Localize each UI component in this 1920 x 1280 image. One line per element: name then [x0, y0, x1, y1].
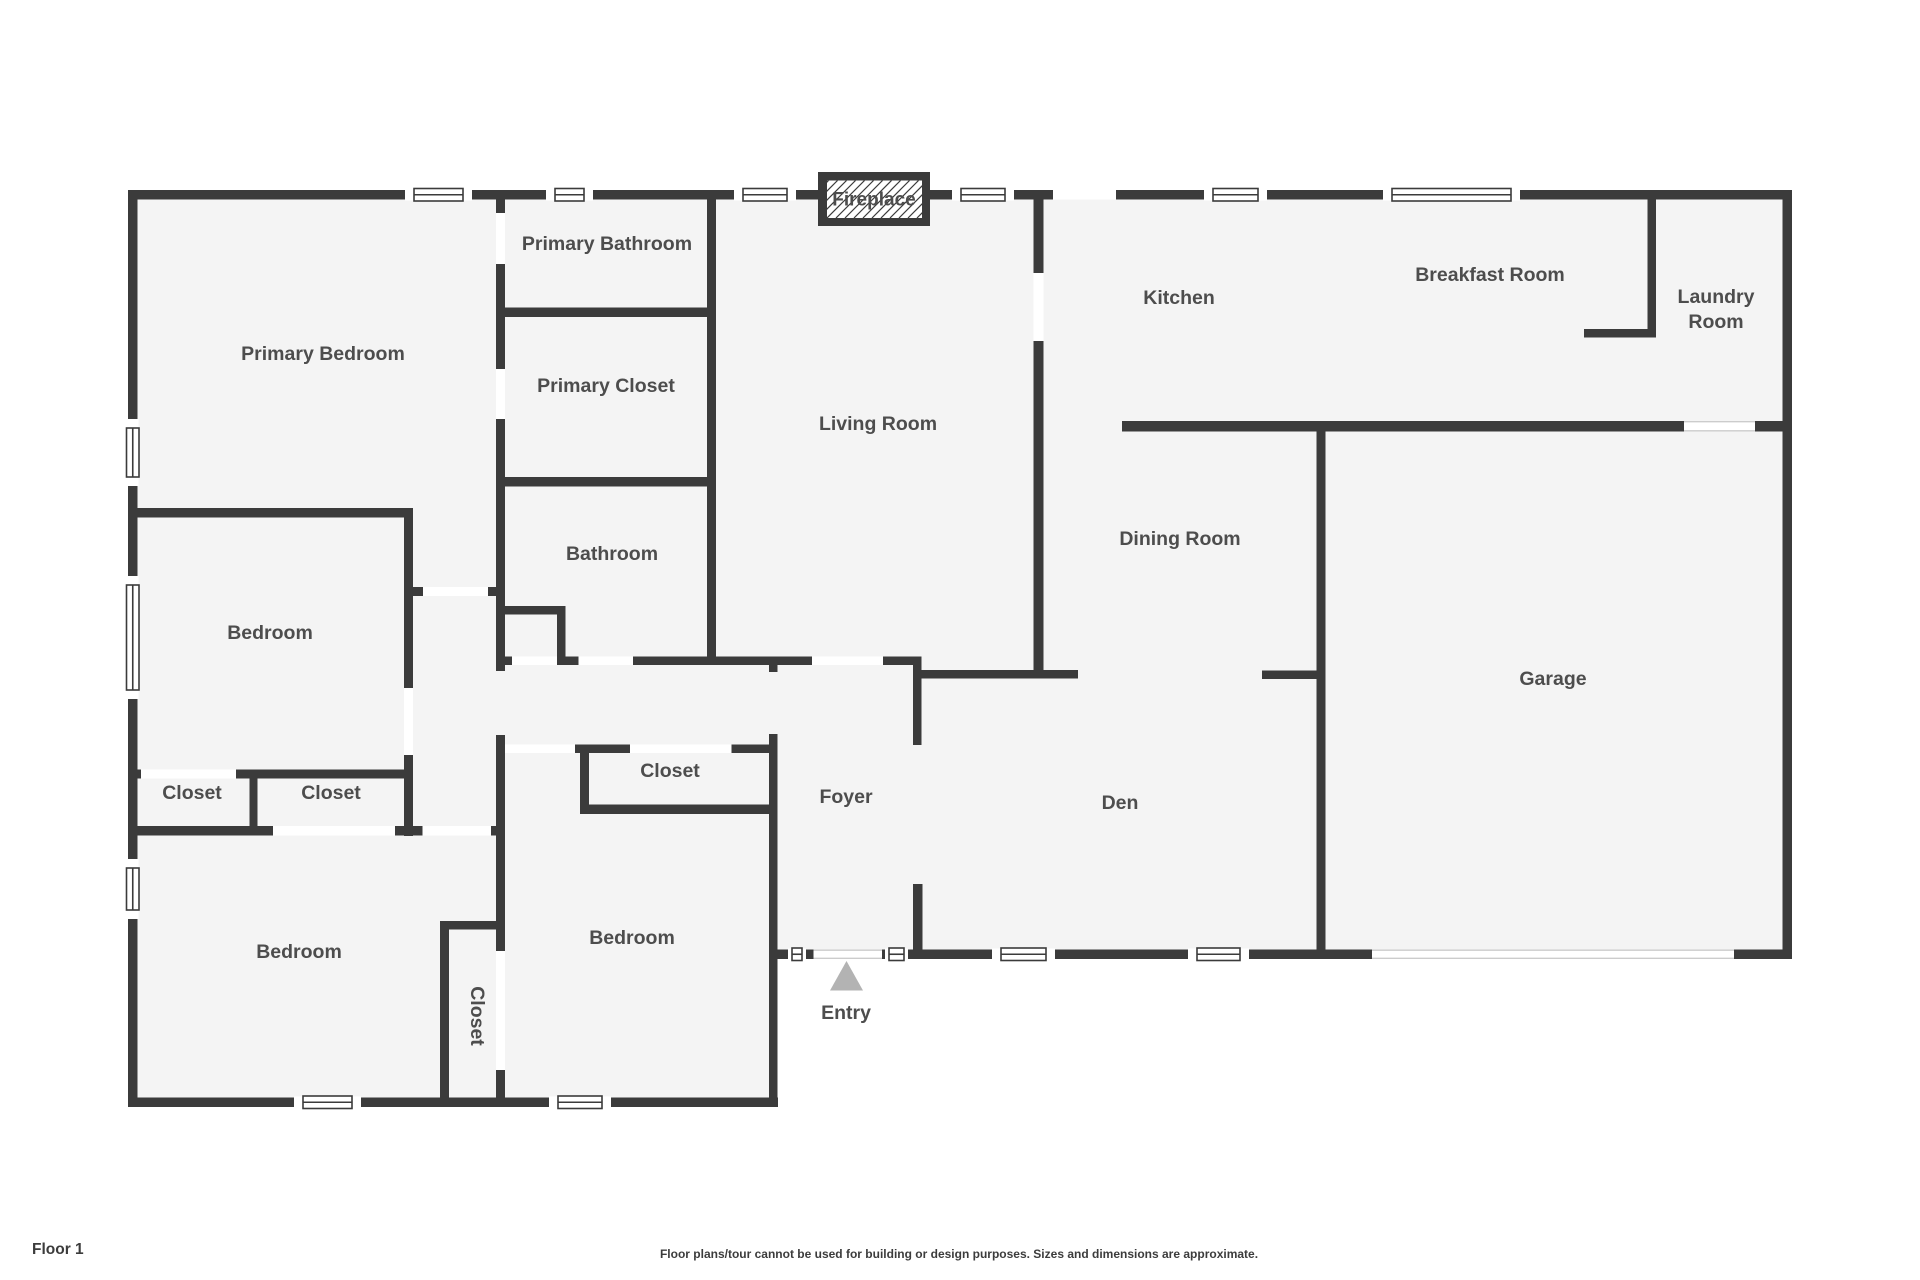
svg-text:Closet: Closet [640, 760, 700, 782]
svg-text:Room: Room [1688, 311, 1743, 333]
svg-text:Foyer: Foyer [819, 786, 873, 808]
svg-text:Bathroom: Bathroom [566, 543, 658, 565]
svg-text:Fireplace: Fireplace [832, 190, 915, 211]
svg-text:Bedroom: Bedroom [227, 622, 313, 644]
svg-text:Floor plans/tour cannot be use: Floor plans/tour cannot be used for buil… [660, 1247, 1258, 1261]
svg-text:Bedroom: Bedroom [589, 927, 675, 949]
svg-text:Garage: Garage [1519, 668, 1586, 690]
svg-text:Closet: Closet [301, 782, 361, 804]
svg-text:Breakfast Room: Breakfast Room [1415, 264, 1565, 286]
svg-text:Living Room: Living Room [819, 413, 937, 435]
svg-text:Closet: Closet [162, 782, 222, 804]
svg-text:Primary Closet: Primary Closet [537, 375, 675, 397]
svg-text:Entry: Entry [821, 1002, 871, 1024]
svg-text:Primary Bedroom: Primary Bedroom [241, 343, 405, 365]
svg-text:Primary Bathroom: Primary Bathroom [522, 233, 692, 255]
svg-text:Laundry: Laundry [1678, 286, 1755, 308]
svg-text:Dining Room: Dining Room [1119, 528, 1240, 550]
svg-text:Closet: Closet [466, 986, 488, 1046]
svg-text:Floor 1: Floor 1 [32, 1241, 84, 1258]
svg-text:Den: Den [1102, 792, 1139, 814]
svg-text:Kitchen: Kitchen [1143, 287, 1215, 309]
svg-text:Bedroom: Bedroom [256, 941, 342, 963]
